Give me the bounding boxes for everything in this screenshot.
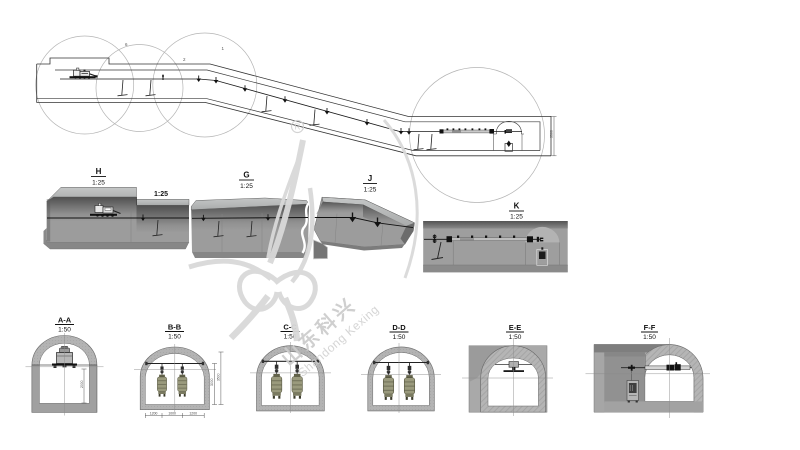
svg-text:1:25: 1:25 (92, 180, 105, 187)
svg-text:1:25: 1:25 (510, 214, 523, 221)
svg-text:G: G (243, 171, 249, 180)
svg-text:F-F: F-F (644, 323, 656, 332)
svg-text:R: R (294, 122, 300, 132)
svg-text:A-A: A-A (58, 316, 72, 325)
svg-text:K: K (514, 202, 520, 211)
svg-text:1:25: 1:25 (240, 183, 253, 190)
svg-text:1200: 1200 (150, 411, 158, 415)
svg-text:1:50: 1:50 (643, 334, 656, 341)
svg-text:1000: 1000 (168, 411, 176, 415)
svg-text:3500: 3500 (217, 373, 221, 381)
svg-text:3000: 3000 (210, 378, 214, 386)
svg-text:1:25: 1:25 (364, 187, 377, 194)
svg-text:1:25: 1:25 (154, 191, 168, 198)
svg-text:1:50: 1:50 (393, 334, 406, 341)
svg-text:E-E: E-E (509, 323, 522, 332)
svg-text:1:50: 1:50 (168, 334, 181, 341)
svg-text:2000: 2000 (80, 380, 84, 388)
svg-text:1200: 1200 (189, 411, 197, 415)
svg-text:1:50: 1:50 (509, 334, 522, 341)
svg-text:H: H (96, 167, 102, 176)
svg-text:J: J (368, 174, 372, 183)
svg-text:1:50: 1:50 (58, 327, 71, 334)
svg-text:3500: 3500 (550, 130, 554, 138)
svg-text:B-B: B-B (168, 323, 182, 332)
svg-text:D-D: D-D (392, 323, 406, 332)
